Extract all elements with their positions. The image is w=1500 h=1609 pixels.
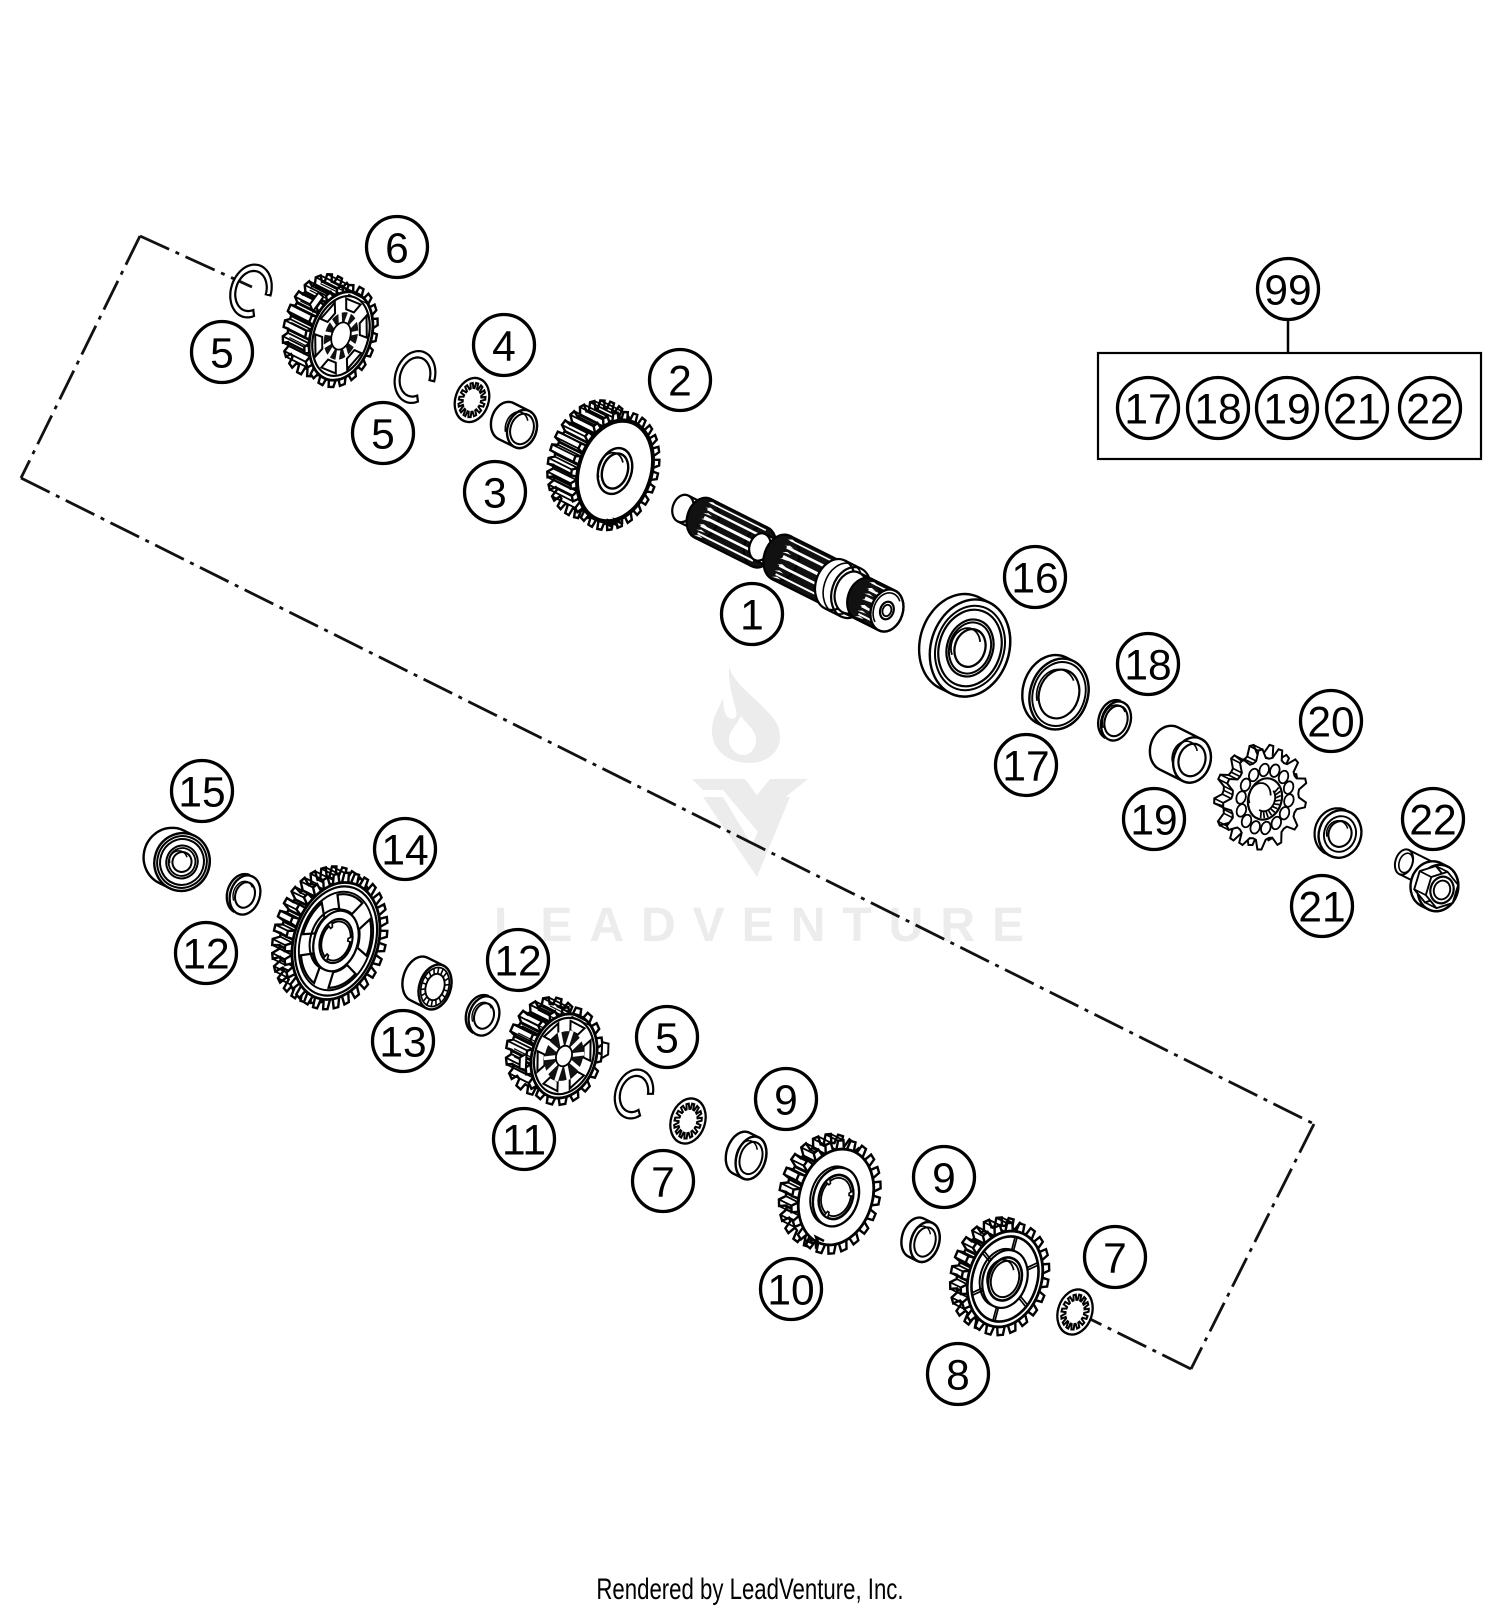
svg-text:16: 16 <box>1011 556 1058 603</box>
svg-text:12: 12 <box>494 939 541 986</box>
svg-text:7: 7 <box>651 1160 675 1207</box>
svg-text:Rendered by LeadVenture, Inc.: Rendered by LeadVenture, Inc. <box>596 1572 903 1606</box>
svg-text:19: 19 <box>1130 798 1177 845</box>
svg-text:21: 21 <box>1333 387 1380 434</box>
svg-text:9: 9 <box>932 1156 956 1203</box>
svg-text:4: 4 <box>492 324 516 371</box>
svg-text:5: 5 <box>655 1016 679 1063</box>
svg-text:13: 13 <box>379 1020 426 1067</box>
svg-text:5: 5 <box>371 412 395 459</box>
svg-text:99: 99 <box>1264 268 1311 315</box>
svg-text:19: 19 <box>1263 387 1310 434</box>
svg-text:14: 14 <box>381 828 428 875</box>
svg-text:11: 11 <box>502 1118 546 1165</box>
svg-text:LEADVENTURE: LEADVENTURE <box>494 899 1041 952</box>
svg-text:20: 20 <box>1307 700 1354 747</box>
svg-text:9: 9 <box>774 1078 798 1125</box>
svg-text:17: 17 <box>1124 387 1171 434</box>
svg-text:5: 5 <box>210 331 234 378</box>
svg-text:2: 2 <box>668 359 692 406</box>
svg-text:7: 7 <box>1103 1236 1127 1283</box>
svg-text:12: 12 <box>182 932 229 979</box>
svg-text:18: 18 <box>1194 387 1241 434</box>
svg-text:22: 22 <box>1409 798 1456 845</box>
svg-text:22: 22 <box>1406 387 1453 434</box>
svg-text:21: 21 <box>1298 885 1345 932</box>
svg-text:10: 10 <box>767 1268 814 1315</box>
svg-text:18: 18 <box>1124 643 1171 690</box>
svg-text:15: 15 <box>178 770 225 817</box>
svg-text:1: 1 <box>740 593 764 640</box>
svg-text:6: 6 <box>385 226 409 273</box>
svg-text:8: 8 <box>946 1353 970 1400</box>
svg-text:3: 3 <box>483 471 507 518</box>
svg-text:17: 17 <box>1002 744 1049 791</box>
